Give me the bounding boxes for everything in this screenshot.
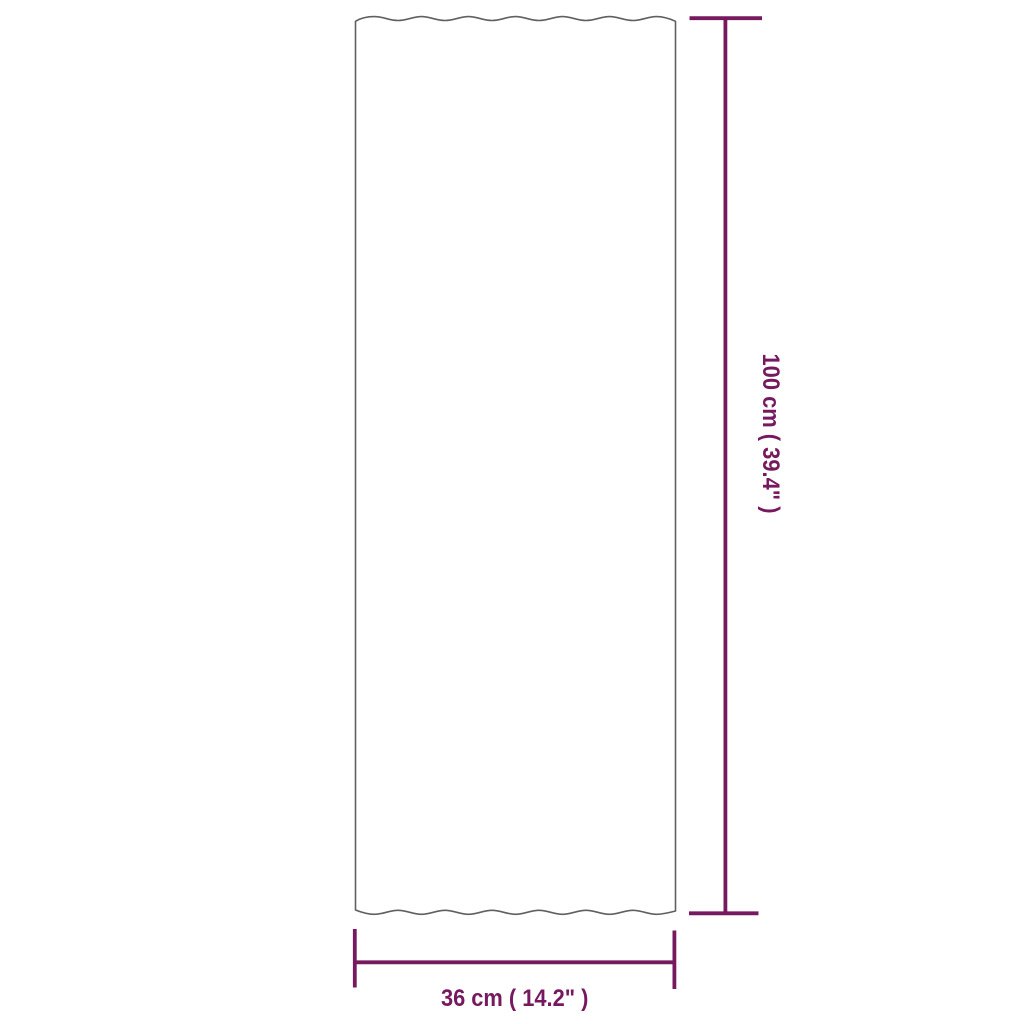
svg-text:100 cm ( 39.4" ): 100 cm ( 39.4" ) — [757, 354, 784, 514]
svg-text:36 cm ( 14.2" ): 36 cm ( 14.2" ) — [441, 985, 589, 1012]
